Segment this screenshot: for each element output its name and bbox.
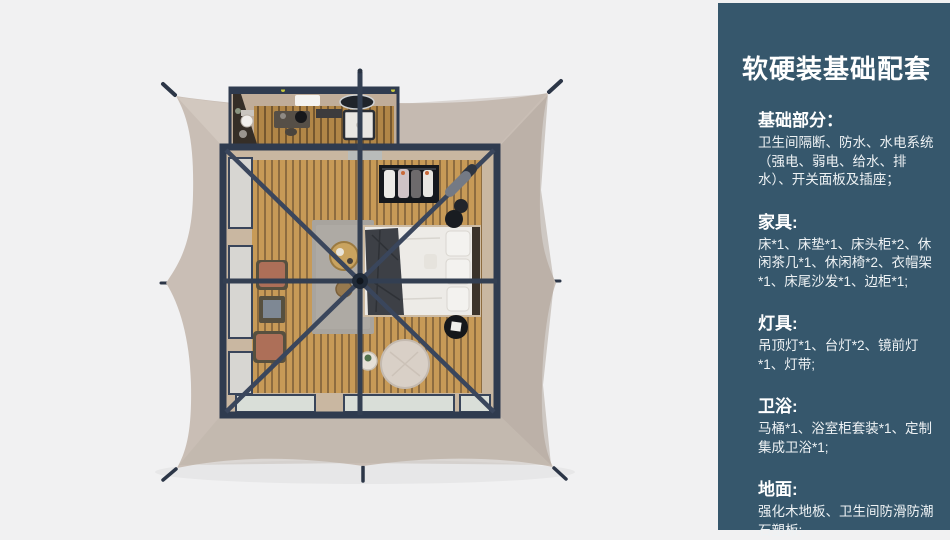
side-table-top — [263, 300, 281, 318]
section-flooring: 地面: 强化木地板、卫生间防滑防潮石塑板; — [758, 475, 936, 540]
tray-dish — [336, 248, 344, 256]
section-furniture-heading: 家具: — [758, 208, 936, 233]
spec-panel: 软硬装基础配套 基础部分： 卫生间隔断、防水、水电系统（强电、弱电、给水、排水）… — [718, 3, 950, 530]
bathroom-unit — [230, 88, 398, 148]
section-basics-heading: 基础部分： — [758, 106, 936, 131]
section-furniture-body: 床*1、床垫*1、床头柜*2、休闲茶几*1、休闲椅*2、衣帽架*1、床尾沙发*1… — [758, 236, 936, 292]
section-basics: 基础部分： 卫生间隔断、防水、水电系统（强电、弱电、给水、排水）、开关面板及插座… — [758, 106, 936, 190]
clothes-tag-2 — [425, 171, 429, 175]
section-flooring-heading: 地面: — [758, 475, 936, 500]
potted-plant — [365, 355, 372, 362]
vanity-faucet — [280, 113, 286, 119]
skylight — [295, 95, 320, 106]
section-bathroom-body: 马桶*1、浴室柜套装*1、定制集成卫浴*1; — [758, 420, 936, 457]
mirror — [340, 95, 374, 109]
toilet — [241, 115, 253, 127]
headboard — [472, 227, 480, 315]
section-bathroom: 卫浴: 马桶*1、浴室柜套装*1、定制集成卫浴*1; — [758, 392, 936, 457]
window-left-middle — [229, 246, 252, 338]
nightstand-2 — [445, 210, 463, 228]
bathroom-plant — [235, 108, 241, 114]
tray-pot — [347, 258, 353, 264]
canvas-shade-bottom — [179, 413, 551, 465]
window-top-wall — [348, 151, 382, 160]
hanging-clothes-white-1 — [384, 170, 395, 198]
glass-door-left — [236, 395, 315, 412]
section-furniture: 家具: 床*1、床垫*1、床头柜*2、休闲茶几*1、休闲椅*2、衣帽架*1、床尾… — [758, 208, 936, 292]
section-lighting-heading: 灯具: — [758, 309, 936, 334]
tent-floorplan-render — [0, 0, 718, 534]
section-lighting: 灯具: 吊顶灯*1、台灯*2、镜前灯*1、灯带; — [758, 309, 936, 374]
section-lighting-body: 吊顶灯*1、台灯*2、镜前灯*1、灯带; — [758, 337, 936, 374]
clothes-tag-1 — [401, 171, 405, 175]
vanity-sink — [295, 111, 307, 123]
vanity-stool — [285, 128, 297, 136]
section-bathroom-heading: 卫浴: — [758, 392, 936, 417]
window-left-top — [229, 158, 252, 228]
bathroom-accessory — [239, 130, 247, 138]
pillow-small — [424, 254, 437, 269]
lounge-chair-2 — [256, 334, 283, 360]
panel-title: 软硬装基础配套 — [742, 49, 910, 86]
bathroom-counter — [316, 109, 342, 118]
section-flooring-body: 强化木地板、卫生间防滑防潮石塑板; — [758, 503, 936, 540]
tray-card — [450, 321, 461, 331]
mast-finial — [358, 69, 363, 74]
section-basics-body: 卫生间隔断、防水、水电系统（强电、弱电、给水、排水）、开关面板及插座； — [758, 134, 936, 190]
pillow-3 — [447, 287, 469, 311]
pillow-1 — [446, 231, 470, 256]
hanging-clothes-grey — [411, 170, 421, 198]
center-hub-cap — [357, 278, 364, 285]
